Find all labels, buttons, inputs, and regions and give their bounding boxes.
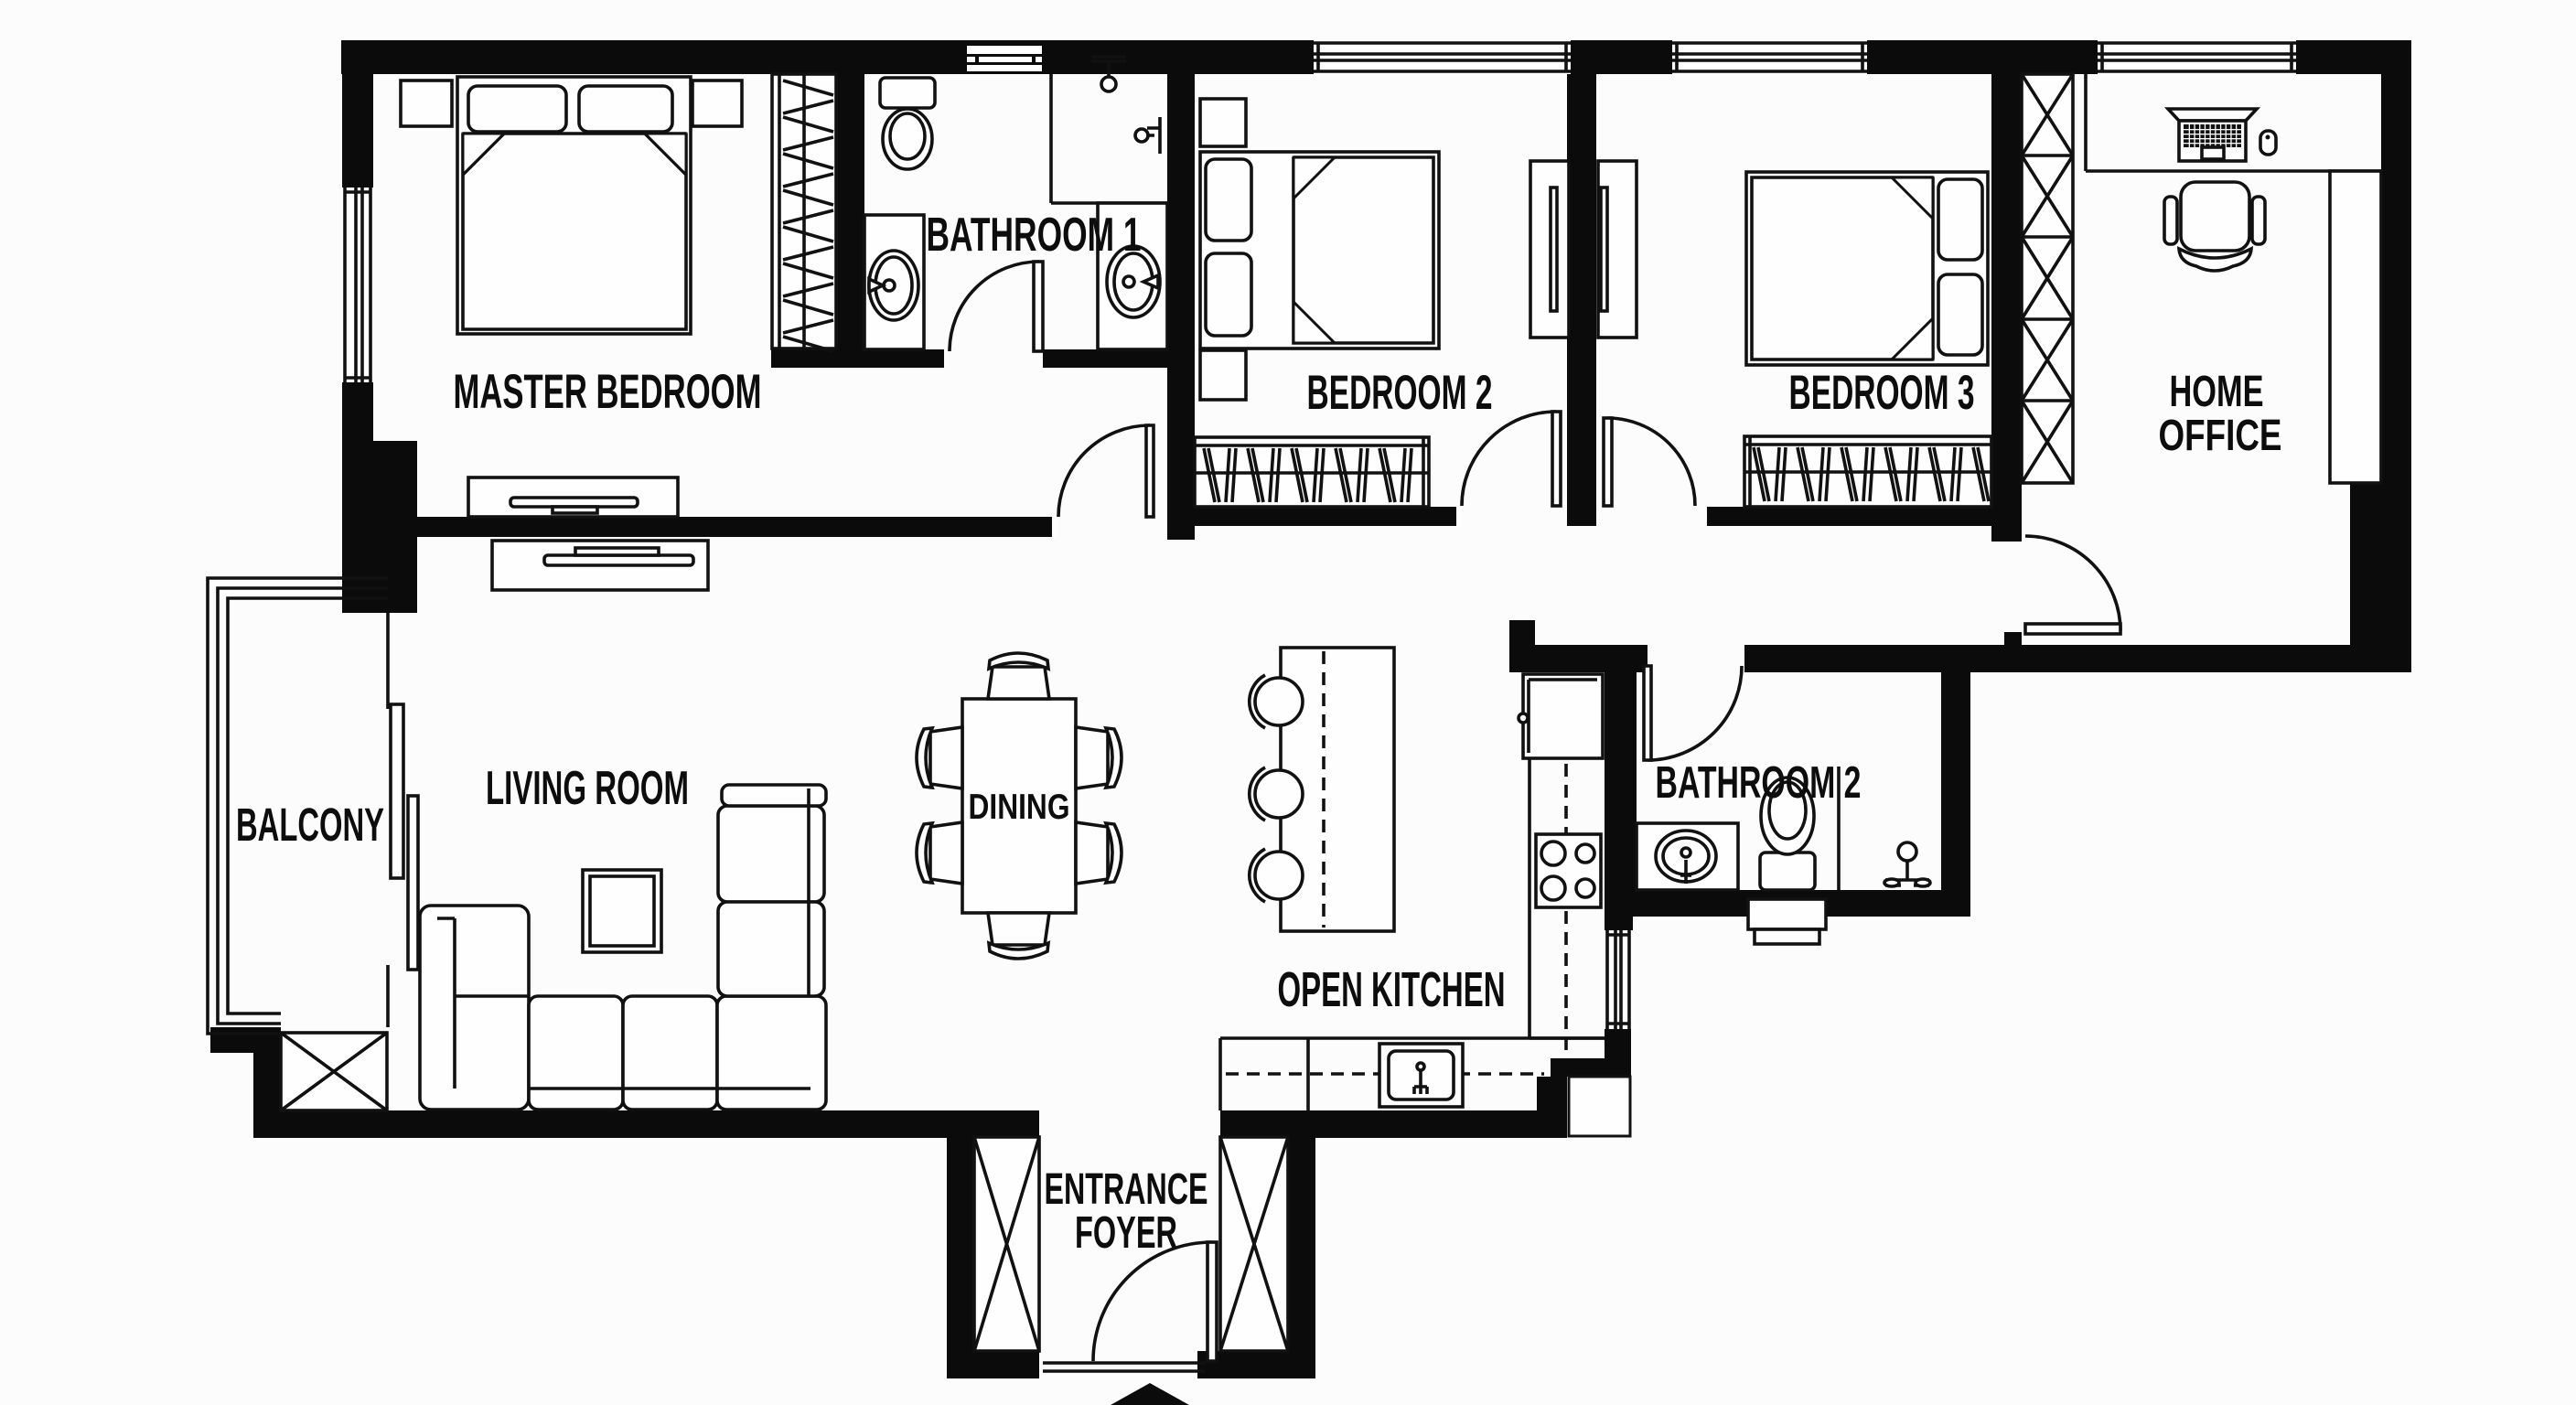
svg-text:BALCONY: BALCONY (236, 799, 384, 851)
svg-text:DINING: DINING (969, 788, 1070, 827)
svg-text:OPEN KITCHEN: OPEN KITCHEN (1278, 962, 1506, 1017)
svg-text:MASTER BEDROOM: MASTER BEDROOM (454, 365, 762, 419)
svg-text:HOME: HOME (2170, 368, 2264, 416)
svg-text:BATHROOM 1: BATHROOM 1 (927, 209, 1142, 262)
svg-text:BEDROOM 3: BEDROOM 3 (1789, 366, 1975, 420)
svg-text:ENTRANCE: ENTRANCE (1045, 1165, 1208, 1214)
svg-text:BEDROOM 2: BEDROOM 2 (1307, 366, 1493, 420)
svg-text:FOYER: FOYER (1075, 1208, 1177, 1258)
svg-text:BATHROOM 2: BATHROOM 2 (1656, 758, 1862, 808)
svg-text:LIVING ROOM: LIVING ROOM (486, 762, 689, 815)
svg-text:OFFICE: OFFICE (2159, 412, 2282, 460)
